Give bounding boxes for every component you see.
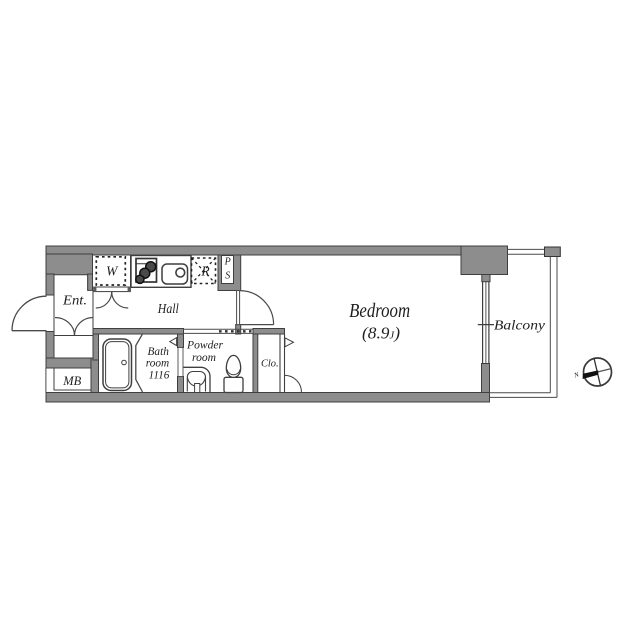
- svg-text:R: R: [200, 264, 210, 279]
- svg-text:Ent.: Ent.: [62, 293, 87, 308]
- svg-text:Bedroom: Bedroom: [349, 301, 410, 322]
- svg-text:P: P: [224, 256, 231, 267]
- svg-text:MB: MB: [62, 374, 81, 388]
- svg-text:(8.9J): (8.9J): [362, 323, 400, 342]
- svg-text:Bath: Bath: [148, 346, 170, 358]
- svg-text:room: room: [192, 350, 216, 364]
- svg-text:W: W: [106, 263, 119, 278]
- svg-text:Hall: Hall: [157, 301, 179, 316]
- svg-text:Balcony: Balcony: [494, 318, 545, 333]
- svg-text:1116: 1116: [149, 369, 170, 381]
- svg-text:room: room: [146, 357, 169, 369]
- svg-text:Clo.: Clo.: [261, 357, 279, 369]
- svg-text:S: S: [225, 271, 230, 282]
